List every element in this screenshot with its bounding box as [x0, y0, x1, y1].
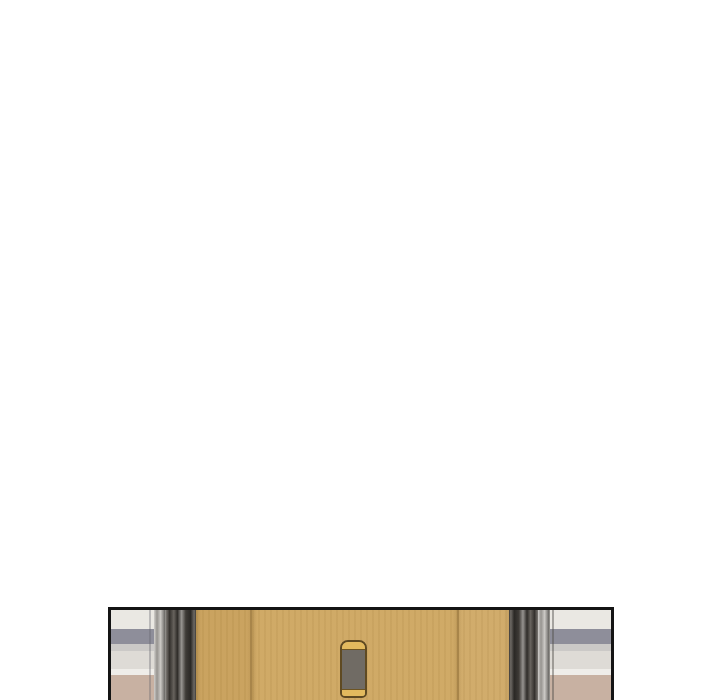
left-door-frame: [166, 610, 196, 700]
door-plate-bottom-cap: [342, 689, 365, 696]
right-window-wall-upper-band: [550, 610, 611, 629]
right-window-floor-band: [550, 675, 611, 700]
right-window-shadow-band: [550, 644, 611, 651]
panel-gap-whitespace: [0, 0, 720, 607]
door-seam-right: [457, 610, 459, 700]
left-window-floor-band: [111, 675, 154, 700]
right-window-mullion: [538, 610, 550, 700]
door-plate: [340, 640, 367, 698]
right-window-wall-lower-band: [550, 651, 611, 669]
left-window-shadow-band: [111, 644, 154, 651]
left-window-wall-upper-band: [111, 610, 154, 629]
comic-panel: [108, 607, 614, 700]
door-right-leaf: [457, 610, 509, 700]
door-seam-left: [250, 610, 252, 700]
right-window: [550, 610, 611, 700]
right-window-rail-band: [550, 629, 611, 644]
door-plate-screen: [342, 650, 365, 689]
door-left-leaf: [196, 610, 252, 700]
left-window-wall-lower-band: [111, 651, 154, 669]
left-window-rail-band: [111, 629, 154, 644]
door-plate-top-cap: [342, 642, 365, 650]
door-center-panel: [252, 610, 457, 700]
right-door-frame: [509, 610, 538, 700]
left-window-mullion: [154, 610, 166, 700]
left-window: [111, 610, 154, 700]
